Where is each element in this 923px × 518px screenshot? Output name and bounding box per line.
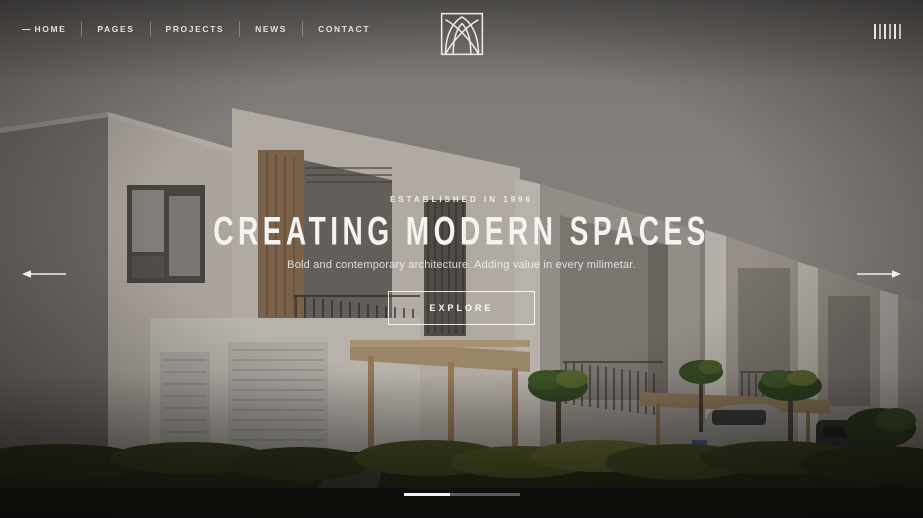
next-slide-button[interactable] xyxy=(855,260,903,290)
nav-item-label: HOME xyxy=(35,21,67,37)
nav-item-label: NEWS xyxy=(255,21,287,37)
slide-progress-indicator xyxy=(404,493,520,496)
nav-item-pages[interactable]: PAGES xyxy=(82,21,150,37)
greenery xyxy=(0,440,923,518)
hero-section: — HOME PAGES PROJECTS NEWS CONTACT xyxy=(0,0,923,518)
garage-wall xyxy=(150,318,420,462)
site-header: — HOME PAGES PROJECTS NEWS CONTACT xyxy=(0,0,923,60)
nav-item-label: PROJECTS xyxy=(166,21,225,37)
main-nav: — HOME PAGES PROJECTS NEWS CONTACT xyxy=(22,21,385,37)
arrow-right-icon xyxy=(857,269,901,279)
nav-item-label: PAGES xyxy=(97,21,134,37)
nav-item-home[interactable]: — HOME xyxy=(22,21,82,37)
nav-item-contact[interactable]: CONTACT xyxy=(303,21,385,37)
logo[interactable] xyxy=(440,12,484,61)
hero-title: CREATING MODERN SPACES xyxy=(213,210,710,255)
prev-slide-button[interactable] xyxy=(20,260,68,290)
explore-button[interactable]: EXPLORE xyxy=(388,291,534,325)
hero-subtitle: Bold and contemporary architecture. Addi… xyxy=(0,259,923,271)
menu-button[interactable] xyxy=(872,22,903,41)
arch-vault-logo-icon xyxy=(440,12,484,56)
slide-indicator-active[interactable] xyxy=(404,493,450,496)
vertical-bars-menu-icon xyxy=(874,24,901,39)
nav-item-news[interactable]: NEWS xyxy=(240,21,303,37)
active-nav-marker: — xyxy=(22,21,31,37)
nav-item-label: CONTACT xyxy=(318,21,370,37)
nav-item-projects[interactable]: PROJECTS xyxy=(151,21,241,37)
hero-eyebrow: ESTABLISHED IN 1996 xyxy=(0,195,923,204)
slide-indicator-inactive[interactable] xyxy=(450,493,520,496)
hero-copy: ESTABLISHED IN 1996 CREATING MODERN SPAC… xyxy=(0,195,923,325)
arrow-left-icon xyxy=(22,269,66,279)
